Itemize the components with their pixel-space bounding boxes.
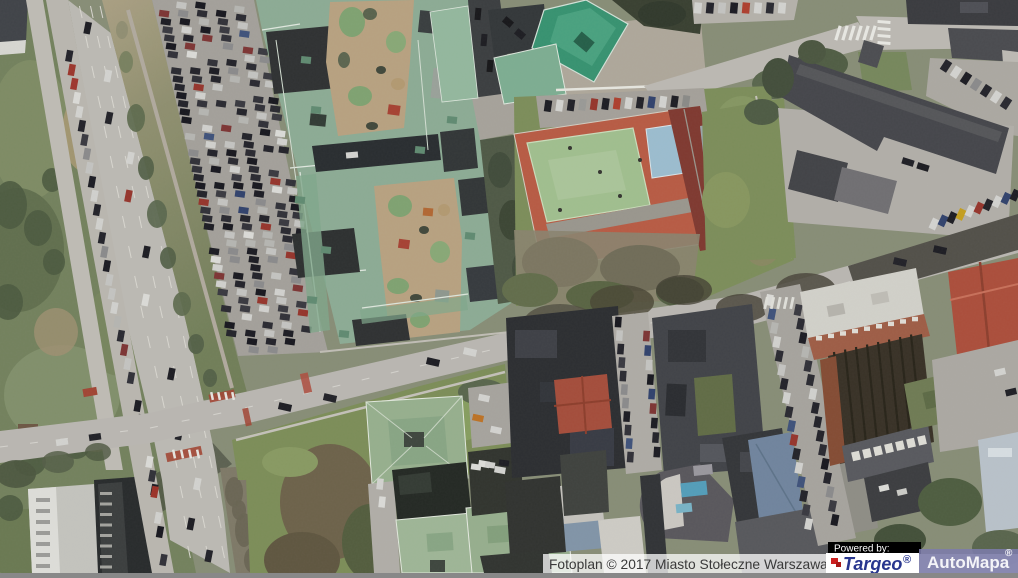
svg-text:®: ® <box>1005 548 1013 559</box>
svg-text:Fotoplan © 2017 Miasto Stołecz: Fotoplan © 2017 Miasto Stołeczne Warszaw… <box>549 557 828 572</box>
svg-text:AutoMapa: AutoMapa <box>927 553 1010 572</box>
svg-text:®: ® <box>903 554 911 566</box>
svg-text:Targeo: Targeo <box>843 554 902 573</box>
svg-text:Powered by:: Powered by: <box>834 544 890 555</box>
